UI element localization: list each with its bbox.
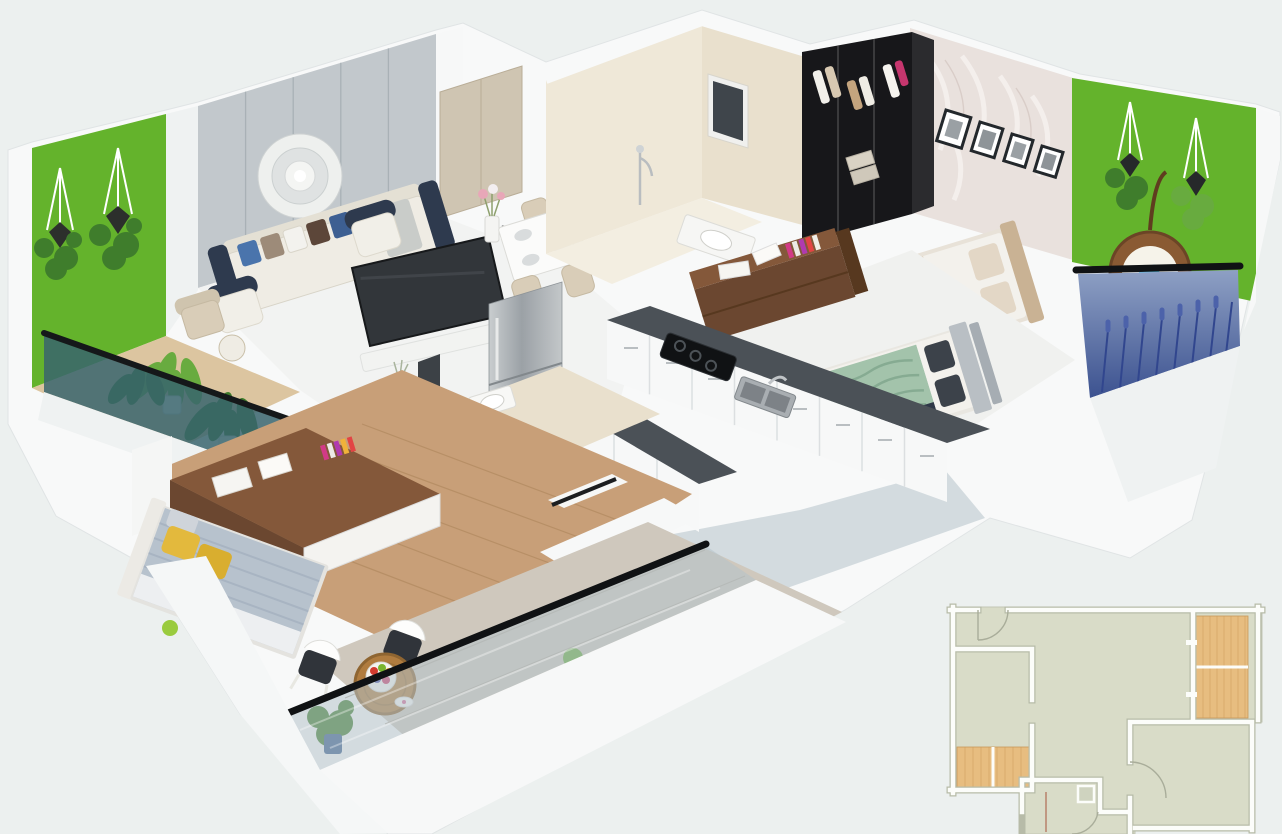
plan-balcony-right <box>1196 616 1248 718</box>
isometric-apartment-scene <box>0 0 1282 834</box>
blossom <box>497 192 505 200</box>
wardrobe-side-panel <box>912 32 934 214</box>
medallion-center <box>294 170 306 182</box>
shower-head <box>636 145 644 153</box>
decor-pom <box>162 620 178 636</box>
round-wall-medallion <box>258 134 342 218</box>
window-glass <box>713 81 743 141</box>
vase <box>485 216 499 242</box>
floor-plan-render-canvas <box>0 0 1282 834</box>
plan-shower-square <box>1078 786 1094 802</box>
plan-window-mark <box>1186 692 1197 697</box>
plan-balcony-left <box>957 747 1029 791</box>
handrail <box>1076 266 1240 270</box>
blossom <box>478 189 488 199</box>
blossom <box>488 184 498 194</box>
plan-window-mark <box>1186 640 1197 645</box>
side-table <box>219 335 245 361</box>
